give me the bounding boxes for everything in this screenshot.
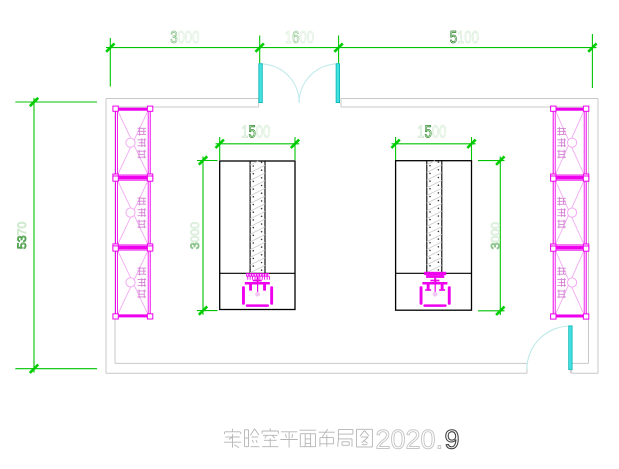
svg-text:6: 6 <box>292 28 300 47</box>
svg-text:1: 1 <box>417 123 424 142</box>
svg-text:00: 00 <box>256 123 271 142</box>
svg-text:9: 9 <box>445 425 460 455</box>
svg-text:000: 000 <box>178 28 200 47</box>
svg-text:3: 3 <box>170 28 178 47</box>
svg-text:5: 5 <box>249 123 257 142</box>
svg-text:2020.: 2020. <box>376 425 444 455</box>
svg-text:70: 70 <box>15 222 29 236</box>
svg-text:53: 53 <box>15 235 29 249</box>
svg-text:1: 1 <box>241 123 248 142</box>
svg-text:5: 5 <box>425 123 433 142</box>
svg-text:5: 5 <box>450 28 458 47</box>
svg-text:000: 000 <box>188 222 202 243</box>
svg-text:00: 00 <box>299 28 314 47</box>
svg-text:1: 1 <box>285 28 292 47</box>
svg-text:100: 100 <box>457 28 479 47</box>
svg-text:00: 00 <box>432 123 447 142</box>
svg-text:000: 000 <box>489 222 503 243</box>
